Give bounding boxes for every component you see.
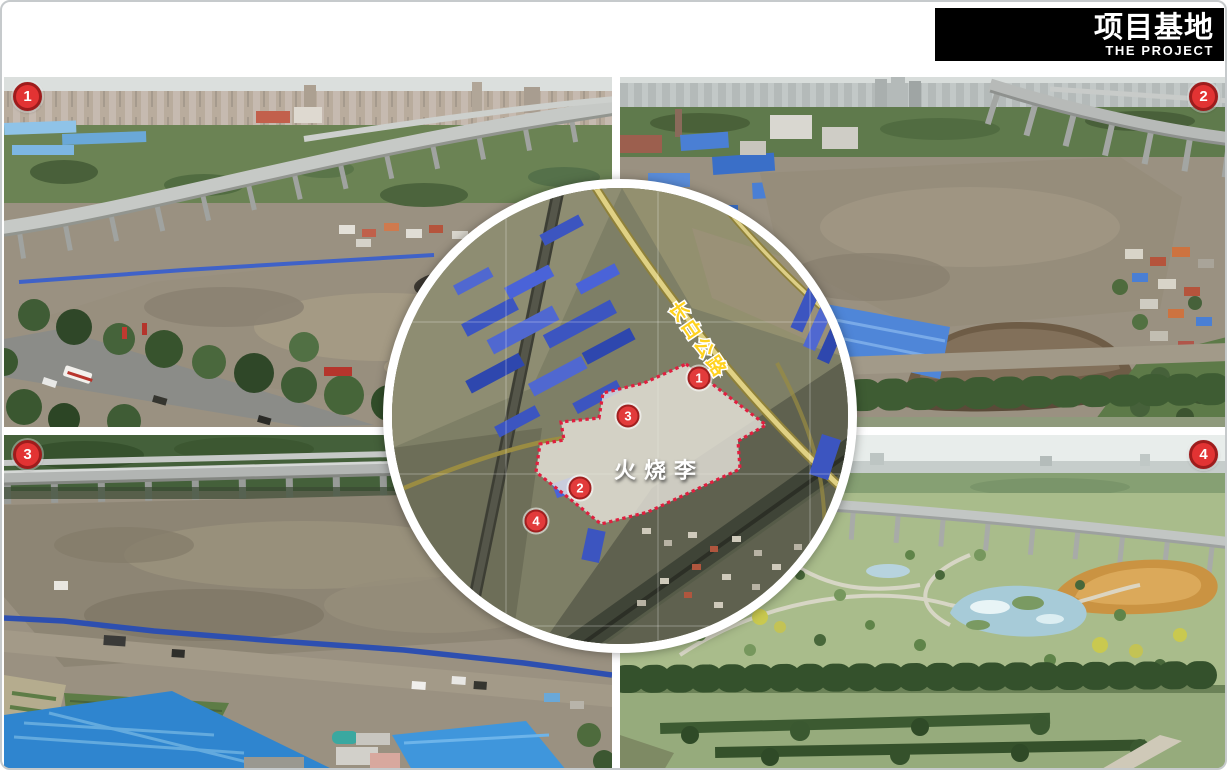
svg-text:2: 2 <box>576 481 583 496</box>
map-marker-2: 2 <box>568 476 593 501</box>
photo-3-number-badge: 3 <box>13 440 42 469</box>
project-site-slide: 项目基地 THE PROJECT <box>0 0 1227 770</box>
slide-title-chinese: 项目基地 <box>935 12 1214 44</box>
site-location-map: 长白公路 火烧李 1234 <box>383 179 857 653</box>
photo-2-number-badge: 2 <box>1189 82 1218 111</box>
photo-1-number-badge: 1 <box>13 82 42 111</box>
map-marker-3: 3 <box>616 404 641 429</box>
title-block: 项目基地 THE PROJECT <box>935 8 1224 61</box>
slide-title-english: THE PROJECT <box>935 44 1214 58</box>
svg-text:3: 3 <box>624 409 631 424</box>
site-name-label: 火烧李 <box>614 458 704 483</box>
svg-text:1: 1 <box>695 371 702 386</box>
map-marker-4: 4 <box>524 509 549 534</box>
svg-text:4: 4 <box>532 514 540 529</box>
map-marker-1: 1 <box>687 366 712 391</box>
photo-4-number-badge: 4 <box>1189 440 1218 469</box>
site-location-map-artwork: 长白公路 火烧李 1234 <box>392 188 848 644</box>
